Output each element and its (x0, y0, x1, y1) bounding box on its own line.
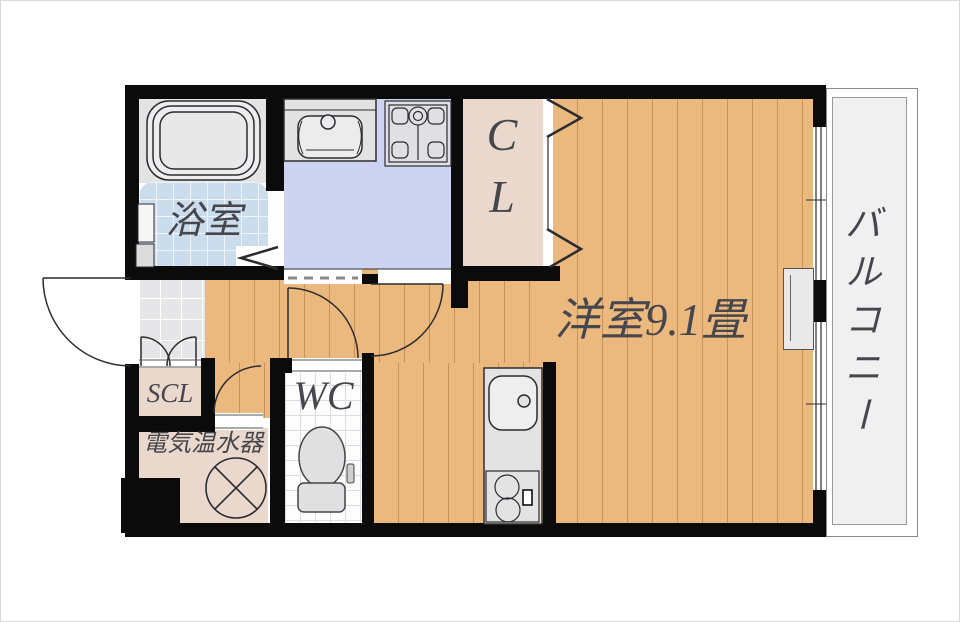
bathtub (147, 101, 260, 180)
bathroom-label: 浴室 (139, 202, 268, 240)
floor-plan: 浴室 洋室9.1畳 C L SCL WC 電気温水器 バルコニー (0, 0, 960, 622)
washbasin (284, 99, 376, 161)
bathroom-folding-door (241, 247, 278, 269)
balcony-label: バルコニー (840, 184, 877, 464)
closet-label-line2: L (460, 174, 544, 220)
heater-door (214, 366, 261, 413)
water-heater-symbol (206, 458, 266, 518)
entry-door (43, 278, 131, 366)
balcony-windows (806, 127, 826, 490)
main-room-label: 洋室9.1畳 (528, 298, 773, 343)
wc-label: WC (285, 376, 362, 416)
water-heater-label: 電気温水器 (138, 432, 268, 456)
closet-label-line1: C (460, 112, 544, 158)
closet-folding-doors (547, 99, 581, 267)
closet-label: C L (460, 112, 544, 220)
wc-door (288, 288, 358, 358)
shoe-closet-label: SCL (139, 380, 201, 407)
main-room-door (371, 284, 443, 356)
plan-symbols (0, 0, 960, 622)
kitchenette (484, 368, 542, 524)
scl-doors (141, 337, 196, 366)
washing-machine-pan (385, 101, 451, 166)
toilet (298, 427, 354, 512)
bath-stool (136, 244, 154, 267)
